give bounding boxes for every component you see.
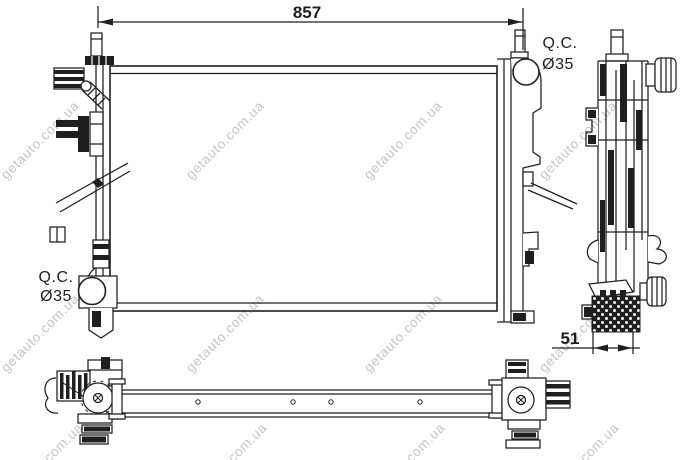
qc-label-text: Q.C. [39,269,74,286]
dimension-width: 857 [98,3,523,50]
qc-port-circle-top [513,59,539,85]
qc-label-text: Q.C. [543,35,578,52]
qc-diameter-text: Ø35 [40,288,72,305]
side-clip-right [648,235,666,264]
dimension-depth: 51 [552,329,640,354]
dimension-width-value: 857 [293,3,321,22]
side-connector-bottom [640,277,666,306]
side-view [582,30,676,332]
hose-connector-upper-left [54,68,110,109]
side-connector-top [646,58,676,92]
qc-label-top-right: Q.C. Ø35 [542,35,577,73]
qc-label-bottom-left: Q.C. Ø35 [39,269,74,305]
stay-rods-right [528,183,577,209]
right-side-plate [497,59,511,322]
radiator-technical-drawing: 857 51 Q.C. Ø35 Q.C. Ø35 getauto.com.ua … [0,0,700,460]
radiator-core [110,66,497,311]
bottom-right-fitting [489,360,570,448]
outlet-pipe-icon [511,30,528,58]
lower-connector-block [592,296,640,332]
side-pipe [606,30,628,61]
mounting-bracket-right [511,232,538,323]
bottom-view [45,357,570,448]
qc-connector-top-right [511,58,541,311]
bottom-bar [122,390,492,417]
ribbed-hose-left [87,240,109,280]
stay-rods-left [56,163,130,212]
qc-connector-bottom-left [79,276,118,338]
bottom-left-fitting [45,357,125,444]
inlet-pipe-icon [85,33,114,65]
dimension-depth-value: 51 [561,329,580,348]
drawing-canvas: 857 51 Q.C. Ø35 Q.C. Ø35 [0,0,700,460]
qc-port-circle-bottom [79,278,106,305]
mounting-bracket-left [56,112,103,156]
bracket-block-left [50,227,65,242]
side-clips-left [586,108,598,263]
qc-diameter-text: Ø35 [542,56,574,73]
front-view [50,30,577,338]
